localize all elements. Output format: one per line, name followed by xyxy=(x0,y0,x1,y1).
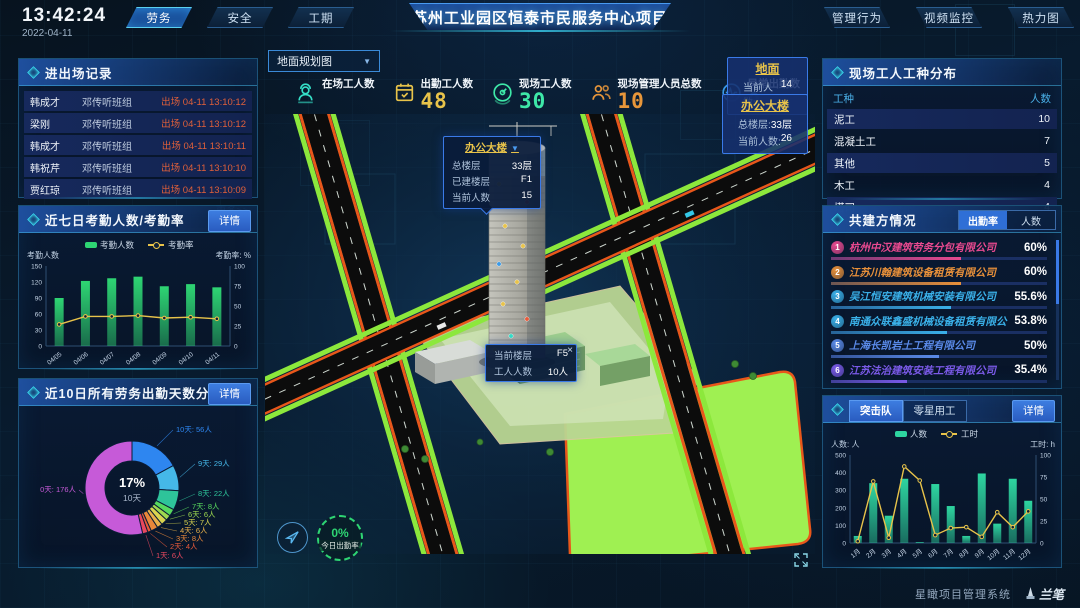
company-item[interactable]: 5上海长凯岩土工程有限公司50% xyxy=(831,337,1047,358)
layer-select-value: 地面规划图 xyxy=(277,53,332,69)
date-display: 2022-04-11 xyxy=(22,28,106,39)
col-worker-type: 工种 xyxy=(833,91,854,106)
assault-team-panel: 突击队 零星用工 详情 人数 工时 人数: 人 工时: h 0100200300… xyxy=(822,395,1062,568)
building-info-box[interactable]: 办公大楼 总楼层:33层当前人数:26 xyxy=(722,94,808,154)
worker-count: 4 xyxy=(1044,179,1050,191)
detail-button[interactable]: 详情 xyxy=(208,383,251,405)
svg-text:400: 400 xyxy=(835,470,846,477)
progress-fill xyxy=(831,306,951,309)
record-exit-time: 出场 04-11 13:10:10 xyxy=(161,160,246,174)
detail-button[interactable]: 详情 xyxy=(208,210,251,232)
info-row: 总楼层33层 xyxy=(444,157,540,173)
diamond-icon xyxy=(831,403,844,416)
chart-legend: 考勤人数 考勤率 xyxy=(85,239,194,251)
svg-text:1天: 6人: 1天: 6人 xyxy=(156,551,184,560)
diamond-icon xyxy=(831,66,844,79)
table-header: 工种 人数 xyxy=(823,86,1061,109)
record-name: 韩祝芹 xyxy=(30,160,82,175)
info-label: 工人人数 xyxy=(494,364,532,378)
company-item[interactable]: 3吴江恒安建筑机械安装有限公司55.6% xyxy=(831,288,1047,309)
svg-text:50: 50 xyxy=(234,304,242,311)
svg-text:17%: 17% xyxy=(119,475,145,490)
topbar: 13:42:24 2022-04-11 劳务 安全 工期 苏州工业园区恒泰市民服… xyxy=(0,0,1080,40)
svg-text:300: 300 xyxy=(835,488,846,495)
legend-bar-swatch xyxy=(85,242,97,248)
navigation-icon xyxy=(284,529,301,546)
table-row: 木工4 xyxy=(827,175,1057,195)
project-title-banner: 苏州工业园区恒泰市民服务中心项目 xyxy=(409,3,671,30)
record-name: 韩成才 xyxy=(30,94,82,109)
diamond-icon xyxy=(27,213,40,226)
legend-bar-swatch xyxy=(895,431,907,437)
panel-title: 近七日考勤人数/考勤率 xyxy=(45,210,184,229)
info-value: 15 xyxy=(521,190,532,204)
worker-type: 泥工 xyxy=(834,112,855,127)
svg-text:0: 0 xyxy=(1040,541,1044,548)
company-name: 吴江恒安建筑机械安装有限公司 xyxy=(849,289,1008,304)
record-row: 梁刚邓传听班组出场 04-11 13:10:12 xyxy=(24,113,252,133)
tab-heatmap[interactable]: 热力图 xyxy=(1008,7,1074,28)
progress-fill xyxy=(831,380,907,383)
record-row: 韩成才邓传听班组出场 04-11 13:10:12 xyxy=(24,91,252,111)
panel-title: 进出场记录 xyxy=(45,63,113,82)
ground-box-title: 地面 xyxy=(735,60,800,77)
stat-managers: 现场管理人员总数 10 xyxy=(589,76,702,112)
gauge-icon xyxy=(490,80,515,105)
vendor-logo-text: 兰笔 xyxy=(1039,584,1064,603)
stat-site-workers: 现场工人数 30 xyxy=(490,76,572,112)
progress-track xyxy=(831,331,1047,334)
entry-exit-list: 韩成才邓传听班组出场 04-11 13:10:12梁刚邓传听班组出场 04-11… xyxy=(19,86,257,199)
panel-header: 近10日所有劳务出勤天数分布 详情 xyxy=(19,379,257,406)
svg-text:04/11: 04/11 xyxy=(204,351,221,366)
progress-track xyxy=(831,355,1047,358)
svg-text:10月: 10月 xyxy=(986,547,1002,562)
chevron-down-icon[interactable]: ▼ xyxy=(511,144,519,153)
svg-text:75: 75 xyxy=(234,284,242,291)
partners-tabs: 出勤率 人数 xyxy=(958,210,1056,230)
worker-type: 木工 xyxy=(834,178,855,193)
legend-line-swatch xyxy=(941,433,957,435)
scrollbar[interactable] xyxy=(1056,240,1059,380)
company-item[interactable]: 6江苏法治建筑安装工程有限公司35.4% xyxy=(831,362,1047,383)
page-title: 苏州工业园区恒泰市民服务中心项目 xyxy=(412,7,668,28)
worker-count: 10 xyxy=(1038,113,1050,125)
worker-icon xyxy=(293,80,318,105)
svg-text:04/10: 04/10 xyxy=(178,351,195,367)
svg-text:200: 200 xyxy=(835,505,846,512)
info-value: 33层 xyxy=(771,116,792,131)
rank-badge: 1 xyxy=(831,241,844,254)
info-value: F1 xyxy=(521,174,532,188)
info-label: 当前人数: xyxy=(738,133,781,148)
tower-logo-icon xyxy=(1025,587,1036,600)
record-team: 邓传听班组 xyxy=(82,160,161,175)
info-row: 已建楼层F1 xyxy=(444,173,540,189)
company-row: 3吴江恒安建筑机械安装有限公司55.6% xyxy=(831,288,1047,305)
partners-panel: 共建方情况 出勤率 人数 1杭州中汉建筑劳务分包有限公司60%2江苏川翰建筑设备… xyxy=(822,205,1062,389)
record-team: 邓传听班组 xyxy=(82,94,161,109)
svg-text:25: 25 xyxy=(1040,519,1048,526)
legend-line-swatch xyxy=(148,244,164,246)
svg-text:10天: 56人: 10天: 56人 xyxy=(176,425,212,434)
svg-text:6月: 6月 xyxy=(927,547,940,560)
svg-text:0天: 176人: 0天: 176人 xyxy=(40,485,76,494)
company-item[interactable]: 4南通众联鑫盛机械设备租赁有限公司53.8% xyxy=(831,313,1047,334)
assault-team-chart: 010020030040050002550751001月2月3月4月5月6月7月… xyxy=(824,449,1062,567)
company-row: 4南通众联鑫盛机械设备租赁有限公司53.8% xyxy=(831,313,1047,330)
people-icon xyxy=(589,80,614,105)
worker-count: 7 xyxy=(1044,135,1050,147)
stat-attending-workers: 出勤工人数 48 xyxy=(392,76,474,112)
rank-badge: 3 xyxy=(831,290,844,303)
info-value: 10人 xyxy=(548,364,568,378)
stat-onsite-workers: 在场工人数 xyxy=(293,76,375,112)
info-value: 33层 xyxy=(512,158,532,172)
svg-text:04/09: 04/09 xyxy=(151,351,168,367)
info-label: 总楼层 xyxy=(452,158,481,172)
legend-label: 人数 xyxy=(910,428,927,440)
entry-exit-panel: 进出场记录 韩成才邓传听班组出场 04-11 13:10:12梁刚邓传听班组出场… xyxy=(18,58,258,198)
panel-header: 近七日考勤人数/考勤率 详情 xyxy=(19,206,257,233)
topbar-left-tabs: 劳务 安全 工期 xyxy=(126,7,354,28)
tab-safety[interactable]: 安全 xyxy=(207,7,273,28)
company-item[interactable]: 1杭州中汉建筑劳务分包有限公司60% xyxy=(831,239,1047,260)
company-name: 杭州中汉建筑劳务分包有限公司 xyxy=(849,240,1018,255)
info-row: 工人人数10人 xyxy=(486,363,576,379)
company-value: 53.8% xyxy=(1014,315,1047,327)
system-brand: 星瞰项目管理系统 xyxy=(915,586,1011,602)
svg-text:2天: 4人: 2天: 4人 xyxy=(170,542,198,551)
building-name: 办公大楼 xyxy=(465,142,507,154)
worker-types-list: 泥工10混凝土工7其他5木工4塔司4 xyxy=(823,109,1061,217)
svg-text:10天: 10天 xyxy=(123,493,141,503)
title-glow-line xyxy=(390,30,690,32)
fullscreen-icon[interactable] xyxy=(793,552,809,568)
tab-attendance-rate[interactable]: 出勤率 xyxy=(959,211,1007,229)
table-row: 其他5 xyxy=(827,153,1057,173)
building-tooltip-title[interactable]: 办公大楼▼ xyxy=(444,137,540,157)
info-row: 总楼层:33层 xyxy=(730,115,800,132)
stat-label: 在场工人数 xyxy=(322,76,375,91)
progress-track xyxy=(831,306,1047,309)
panel-header: 现场工人工种分布 xyxy=(823,59,1061,86)
panel-title: 现场工人工种分布 xyxy=(849,63,957,82)
svg-text:90: 90 xyxy=(35,296,43,303)
record-exit-time: 出场 04-11 13:10:11 xyxy=(162,138,246,152)
company-value: 55.6% xyxy=(1014,291,1047,303)
svg-text:60: 60 xyxy=(35,312,43,319)
svg-text:150: 150 xyxy=(31,264,42,271)
record-team: 邓传听班组 xyxy=(82,116,161,131)
svg-text:30: 30 xyxy=(35,328,43,335)
tab-odd-jobs[interactable]: 零星用工 xyxy=(903,400,967,422)
rank-badge: 4 xyxy=(831,315,844,328)
today-attendance-gauge: 0% 今日出勤率 xyxy=(317,515,363,561)
progress-fill xyxy=(831,355,939,358)
company-value: 60% xyxy=(1024,242,1047,254)
svg-text:25: 25 xyxy=(234,324,242,331)
svg-text:5月: 5月 xyxy=(911,547,924,560)
stat-value: 48 xyxy=(421,91,474,112)
vendor-logo: 兰笔 xyxy=(1025,584,1064,603)
progress-fill xyxy=(831,331,947,334)
building-tooltip: 办公大楼▼ 总楼层33层已建楼层F1当前人数15 xyxy=(443,136,541,209)
svg-text:9天: 29人: 9天: 29人 xyxy=(198,459,230,468)
tab-management-behavior[interactable]: 管理行为 xyxy=(824,7,890,28)
svg-text:8天: 22人: 8天: 22人 xyxy=(198,489,230,498)
distribution-donut-chart: 10天: 56人9天: 29人8天: 22人7天: 8人6天: 6人5天: 7人… xyxy=(20,408,258,568)
chevron-down-icon: ▼ xyxy=(363,57,371,66)
company-name: 南通众联鑫盛机械设备租赁有限公司 xyxy=(849,314,1008,329)
worker-type: 混凝土工 xyxy=(834,134,876,149)
compass-control[interactable] xyxy=(277,522,308,553)
info-row: 当前楼层F5 xyxy=(486,347,576,363)
worker-count: 5 xyxy=(1044,157,1050,169)
record-exit-time: 出场 04-11 13:10:12 xyxy=(161,94,246,108)
detail-button[interactable]: 详情 xyxy=(1012,400,1055,422)
company-row: 5上海长凯岩土工程有限公司50% xyxy=(831,337,1047,354)
record-row: 韩成才邓传听班组出场 04-11 13:10:11 xyxy=(24,135,252,155)
rank-badge: 6 xyxy=(831,364,844,377)
tab-assault-team[interactable]: 突击队 xyxy=(849,400,903,422)
panel-header: 共建方情况 出勤率 人数 xyxy=(823,206,1061,233)
worker-type: 其他 xyxy=(834,156,855,171)
panel-title: 近10日所有劳务出勤天数分布 xyxy=(45,383,223,402)
floor-tooltip: × 当前楼层F5工人人数10人 xyxy=(485,344,577,382)
attendance-panel: 近七日考勤人数/考勤率 详情 考勤人数 考勤率 考勤人数 考勤率: % 0306… xyxy=(18,205,258,369)
company-name: 上海长凯岩土工程有限公司 xyxy=(849,338,1018,353)
tab-video-monitor[interactable]: 视频监控 xyxy=(916,7,982,28)
company-item[interactable]: 2江苏川翰建筑设备租赁有限公司60% xyxy=(831,264,1047,285)
company-value: 60% xyxy=(1024,266,1047,278)
gauge-label: 今日出勤率 xyxy=(319,540,361,551)
tab-headcount[interactable]: 人数 xyxy=(1007,211,1055,229)
progress-track xyxy=(831,282,1047,285)
legend-label: 考勤人数 xyxy=(100,239,134,251)
svg-text:2月: 2月 xyxy=(865,547,878,560)
col-count: 人数 xyxy=(1030,91,1051,106)
svg-text:120: 120 xyxy=(31,280,42,287)
svg-text:8月: 8月 xyxy=(958,547,971,560)
svg-text:100: 100 xyxy=(835,523,846,530)
svg-text:04/08: 04/08 xyxy=(125,351,142,367)
info-value: 26 xyxy=(781,133,792,148)
svg-text:1月: 1月 xyxy=(849,547,862,560)
rank-badge: 2 xyxy=(831,266,844,279)
topbar-right-tabs: 管理行为 视频监控 热力图 xyxy=(824,7,1074,28)
diamond-icon xyxy=(831,213,844,226)
company-value: 50% xyxy=(1024,340,1047,352)
record-name: 梁刚 xyxy=(30,116,82,131)
svg-text:0: 0 xyxy=(842,541,846,548)
scrollbar-thumb[interactable] xyxy=(1056,240,1059,304)
company-name: 江苏法治建筑安装工程有限公司 xyxy=(849,363,1008,378)
record-exit-time: 出场 04-11 13:10:12 xyxy=(161,116,246,130)
svg-text:9月: 9月 xyxy=(973,547,986,560)
progress-fill xyxy=(831,257,961,260)
table-row: 混凝土工7 xyxy=(827,131,1057,151)
panel-title: 共建方情况 xyxy=(849,210,917,229)
record-row: 贾红琼邓传听班组出场 04-11 13:10:09 xyxy=(24,179,252,199)
legend-label: 考勤率 xyxy=(168,239,194,251)
building-tooltip-rows: 总楼层33层已建楼层F1当前人数15 xyxy=(444,157,540,208)
layer-select-dropdown[interactable]: 地面规划图 ▼ xyxy=(268,50,380,72)
worker-types-panel: 现场工人工种分布 工种 人数 泥工10混凝土工7其他5木工4塔司4 xyxy=(822,58,1062,199)
close-icon[interactable]: × xyxy=(567,345,573,356)
stat-value: 10 xyxy=(618,91,702,112)
calendar-check-icon xyxy=(392,80,417,105)
svg-text:500: 500 xyxy=(835,453,846,460)
info-label: 当前楼层 xyxy=(494,348,532,362)
svg-text:3月: 3月 xyxy=(880,547,893,560)
svg-text:12月: 12月 xyxy=(1017,547,1033,562)
site-map-area: 地面规划图 ▼ 在场工人数 出勤工人数 48 现场工人数 30 xyxy=(265,44,815,576)
svg-text:11月: 11月 xyxy=(1002,547,1017,561)
company-row: 1杭州中汉建筑劳务分包有限公司60% xyxy=(831,239,1047,256)
svg-text:0: 0 xyxy=(234,344,238,351)
svg-text:50: 50 xyxy=(1040,497,1048,504)
record-team: 邓传听班组 xyxy=(82,138,162,153)
table-row: 泥工10 xyxy=(827,109,1057,129)
record-name: 韩成才 xyxy=(30,138,82,153)
company-row: 2江苏川翰建筑设备租赁有限公司60% xyxy=(831,264,1047,281)
info-label: 总楼层: xyxy=(738,116,771,131)
record-team: 邓传听班组 xyxy=(82,182,161,197)
rank-badge: 5 xyxy=(831,339,844,352)
svg-text:04/06: 04/06 xyxy=(73,351,90,367)
svg-text:7月: 7月 xyxy=(942,547,955,560)
clock: 13:42:24 2022-04-11 xyxy=(22,5,106,39)
company-row: 6江苏法治建筑安装工程有限公司35.4% xyxy=(831,362,1047,379)
info-row: 当前人数:26 xyxy=(730,132,800,149)
record-exit-time: 出场 04-11 13:10:09 xyxy=(161,182,246,196)
info-label: 已建楼层 xyxy=(452,174,490,188)
attendance-chart: 0306090120150025507510004/0504/0604/0704… xyxy=(20,260,258,368)
gauge-value: 0% xyxy=(331,526,348,540)
svg-text:04/05: 04/05 xyxy=(46,351,63,367)
footer: 星瞰项目管理系统 兰笔 xyxy=(915,584,1064,603)
diamond-icon xyxy=(27,386,40,399)
progress-track xyxy=(831,380,1047,383)
floor-tooltip-rows: 当前楼层F5工人人数10人 xyxy=(486,347,576,379)
assault-tabs: 突击队 零星用工 xyxy=(849,400,967,422)
svg-text:04/07: 04/07 xyxy=(99,351,116,367)
chart-legend: 人数 工时 xyxy=(895,428,978,440)
svg-text:100: 100 xyxy=(1040,453,1051,460)
legend-label: 工时 xyxy=(961,428,978,440)
svg-text:100: 100 xyxy=(234,264,245,271)
record-name: 贾红琼 xyxy=(30,182,82,197)
diamond-icon xyxy=(27,66,40,79)
progress-track xyxy=(831,257,1047,260)
company-list: 1杭州中汉建筑劳务分包有限公司60%2江苏川翰建筑设备租赁有限公司60%3吴江恒… xyxy=(823,233,1061,383)
info-label: 当前人数 xyxy=(452,190,490,204)
company-value: 35.4% xyxy=(1014,364,1047,376)
building-box-title: 办公大楼 xyxy=(730,97,800,114)
company-name: 江苏川翰建筑设备租赁有限公司 xyxy=(849,265,1018,280)
info-row: 当前人数15 xyxy=(444,189,540,205)
svg-text:0: 0 xyxy=(38,344,42,351)
svg-text:75: 75 xyxy=(1040,475,1048,482)
panel-header: 突击队 零星用工 详情 xyxy=(823,396,1061,423)
record-row: 韩祝芹邓传听班组出场 04-11 13:10:10 xyxy=(24,157,252,177)
panel-header: 进出场记录 xyxy=(19,59,257,86)
progress-fill xyxy=(831,282,961,285)
stat-value: 30 xyxy=(519,91,572,112)
distribution-panel: 近10日所有劳务出勤天数分布 详情 10天: 56人9天: 29人8天: 22人… xyxy=(18,378,258,568)
tab-schedule[interactable]: 工期 xyxy=(288,7,354,28)
tab-labor[interactable]: 劳务 xyxy=(126,7,192,28)
time-display: 13:42:24 xyxy=(22,5,106,27)
svg-text:4月: 4月 xyxy=(896,547,909,560)
